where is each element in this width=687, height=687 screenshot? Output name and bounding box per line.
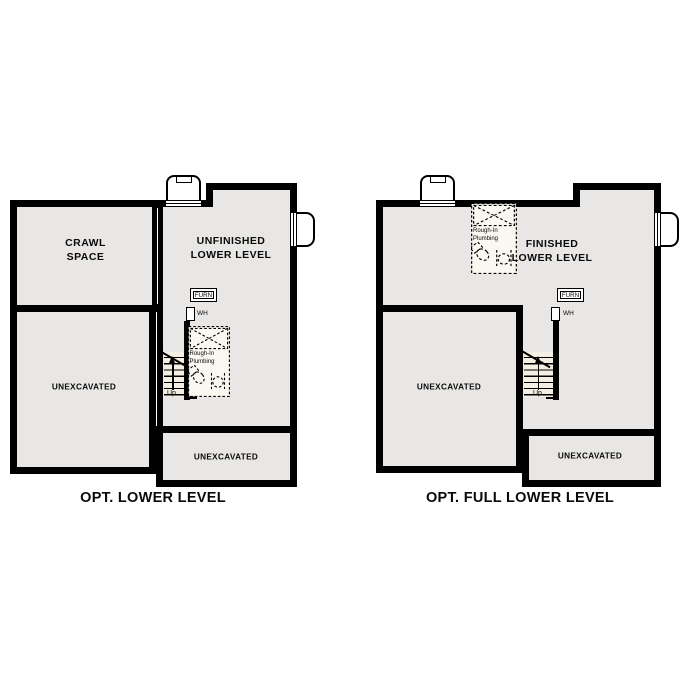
- wall: [376, 466, 529, 473]
- wall: [522, 429, 654, 436]
- wall: [156, 426, 297, 433]
- furnace-box: FURN: [190, 288, 217, 302]
- water-heater-label: WH: [563, 310, 574, 317]
- furnace-box: FURN: [557, 288, 584, 302]
- wall: [376, 200, 383, 473]
- wall: [149, 305, 156, 474]
- stairs-up-label: Up: [167, 390, 176, 397]
- window-icon: [166, 200, 201, 207]
- wall: [156, 480, 297, 487]
- window-well-icon: [297, 212, 315, 247]
- plumbing-label-line2: Plumbing: [473, 236, 498, 242]
- room-label-unexcavated-left: UNEXCAVATED: [52, 383, 116, 392]
- stair-wall: [553, 321, 559, 400]
- window-well-icon: [166, 175, 201, 201]
- water-heater-box: [551, 307, 560, 321]
- up-arrow-icon: [538, 363, 540, 390]
- plumbing-label-line2: Plumbing: [190, 359, 215, 365]
- wall: [522, 429, 529, 487]
- window-icon: [654, 213, 661, 246]
- plumbing-label-line1: Rough-In: [190, 351, 215, 357]
- furnace-label: FURN: [193, 291, 215, 300]
- room-label-unexcavated-bottom: UNEXCAVATED: [558, 452, 622, 461]
- window-icon: [290, 213, 297, 246]
- room-label-unexcavated-bottom: UNEXCAVATED: [194, 453, 258, 462]
- room-label-unexcavated-left: UNEXCAVATED: [417, 383, 481, 392]
- wall: [10, 467, 158, 474]
- window-well-notch-icon: [430, 177, 446, 183]
- floorplan-sheet: Up FURN WH Rough-In Plumbing: [0, 0, 687, 687]
- wall: [10, 305, 17, 474]
- wall: [10, 305, 163, 312]
- wall: [156, 426, 163, 487]
- room-fill: [580, 190, 654, 210]
- furnace-label: FURN: [560, 291, 582, 300]
- wall-seam: [157, 208, 158, 304]
- wall: [10, 200, 17, 312]
- wall: [376, 305, 523, 312]
- wall: [522, 480, 661, 487]
- room-label-unfinished-lower-level: UNFINISHED LOWER LEVEL: [191, 234, 272, 262]
- window-icon: [420, 200, 455, 207]
- up-arrow-head-icon: [169, 356, 175, 363]
- water-heater-box: [186, 307, 195, 321]
- water-heater-label: WH: [197, 310, 208, 317]
- plan-title-opt-lower-level: OPT. LOWER LEVEL: [80, 490, 226, 506]
- window-well-icon: [420, 175, 455, 201]
- up-arrow-head-icon: [535, 356, 541, 363]
- stairs-up-label: Up: [533, 390, 542, 397]
- room-fill: [213, 190, 290, 210]
- window-well-icon: [661, 212, 679, 247]
- wall: [206, 183, 297, 190]
- plumbing-label-line1: Rough-In: [473, 228, 498, 234]
- room-label-finished-lower-level: FINISHED LOWER LEVEL: [512, 237, 593, 265]
- wall: [573, 183, 661, 190]
- wall: [290, 426, 297, 487]
- window-well-notch-icon: [176, 177, 192, 183]
- room-label-crawl-space: CRAWL SPACE: [65, 236, 106, 264]
- up-arrow-icon: [172, 363, 174, 390]
- plan-title-opt-full-lower-level: OPT. FULL LOWER LEVEL: [426, 490, 614, 506]
- wall: [10, 200, 162, 207]
